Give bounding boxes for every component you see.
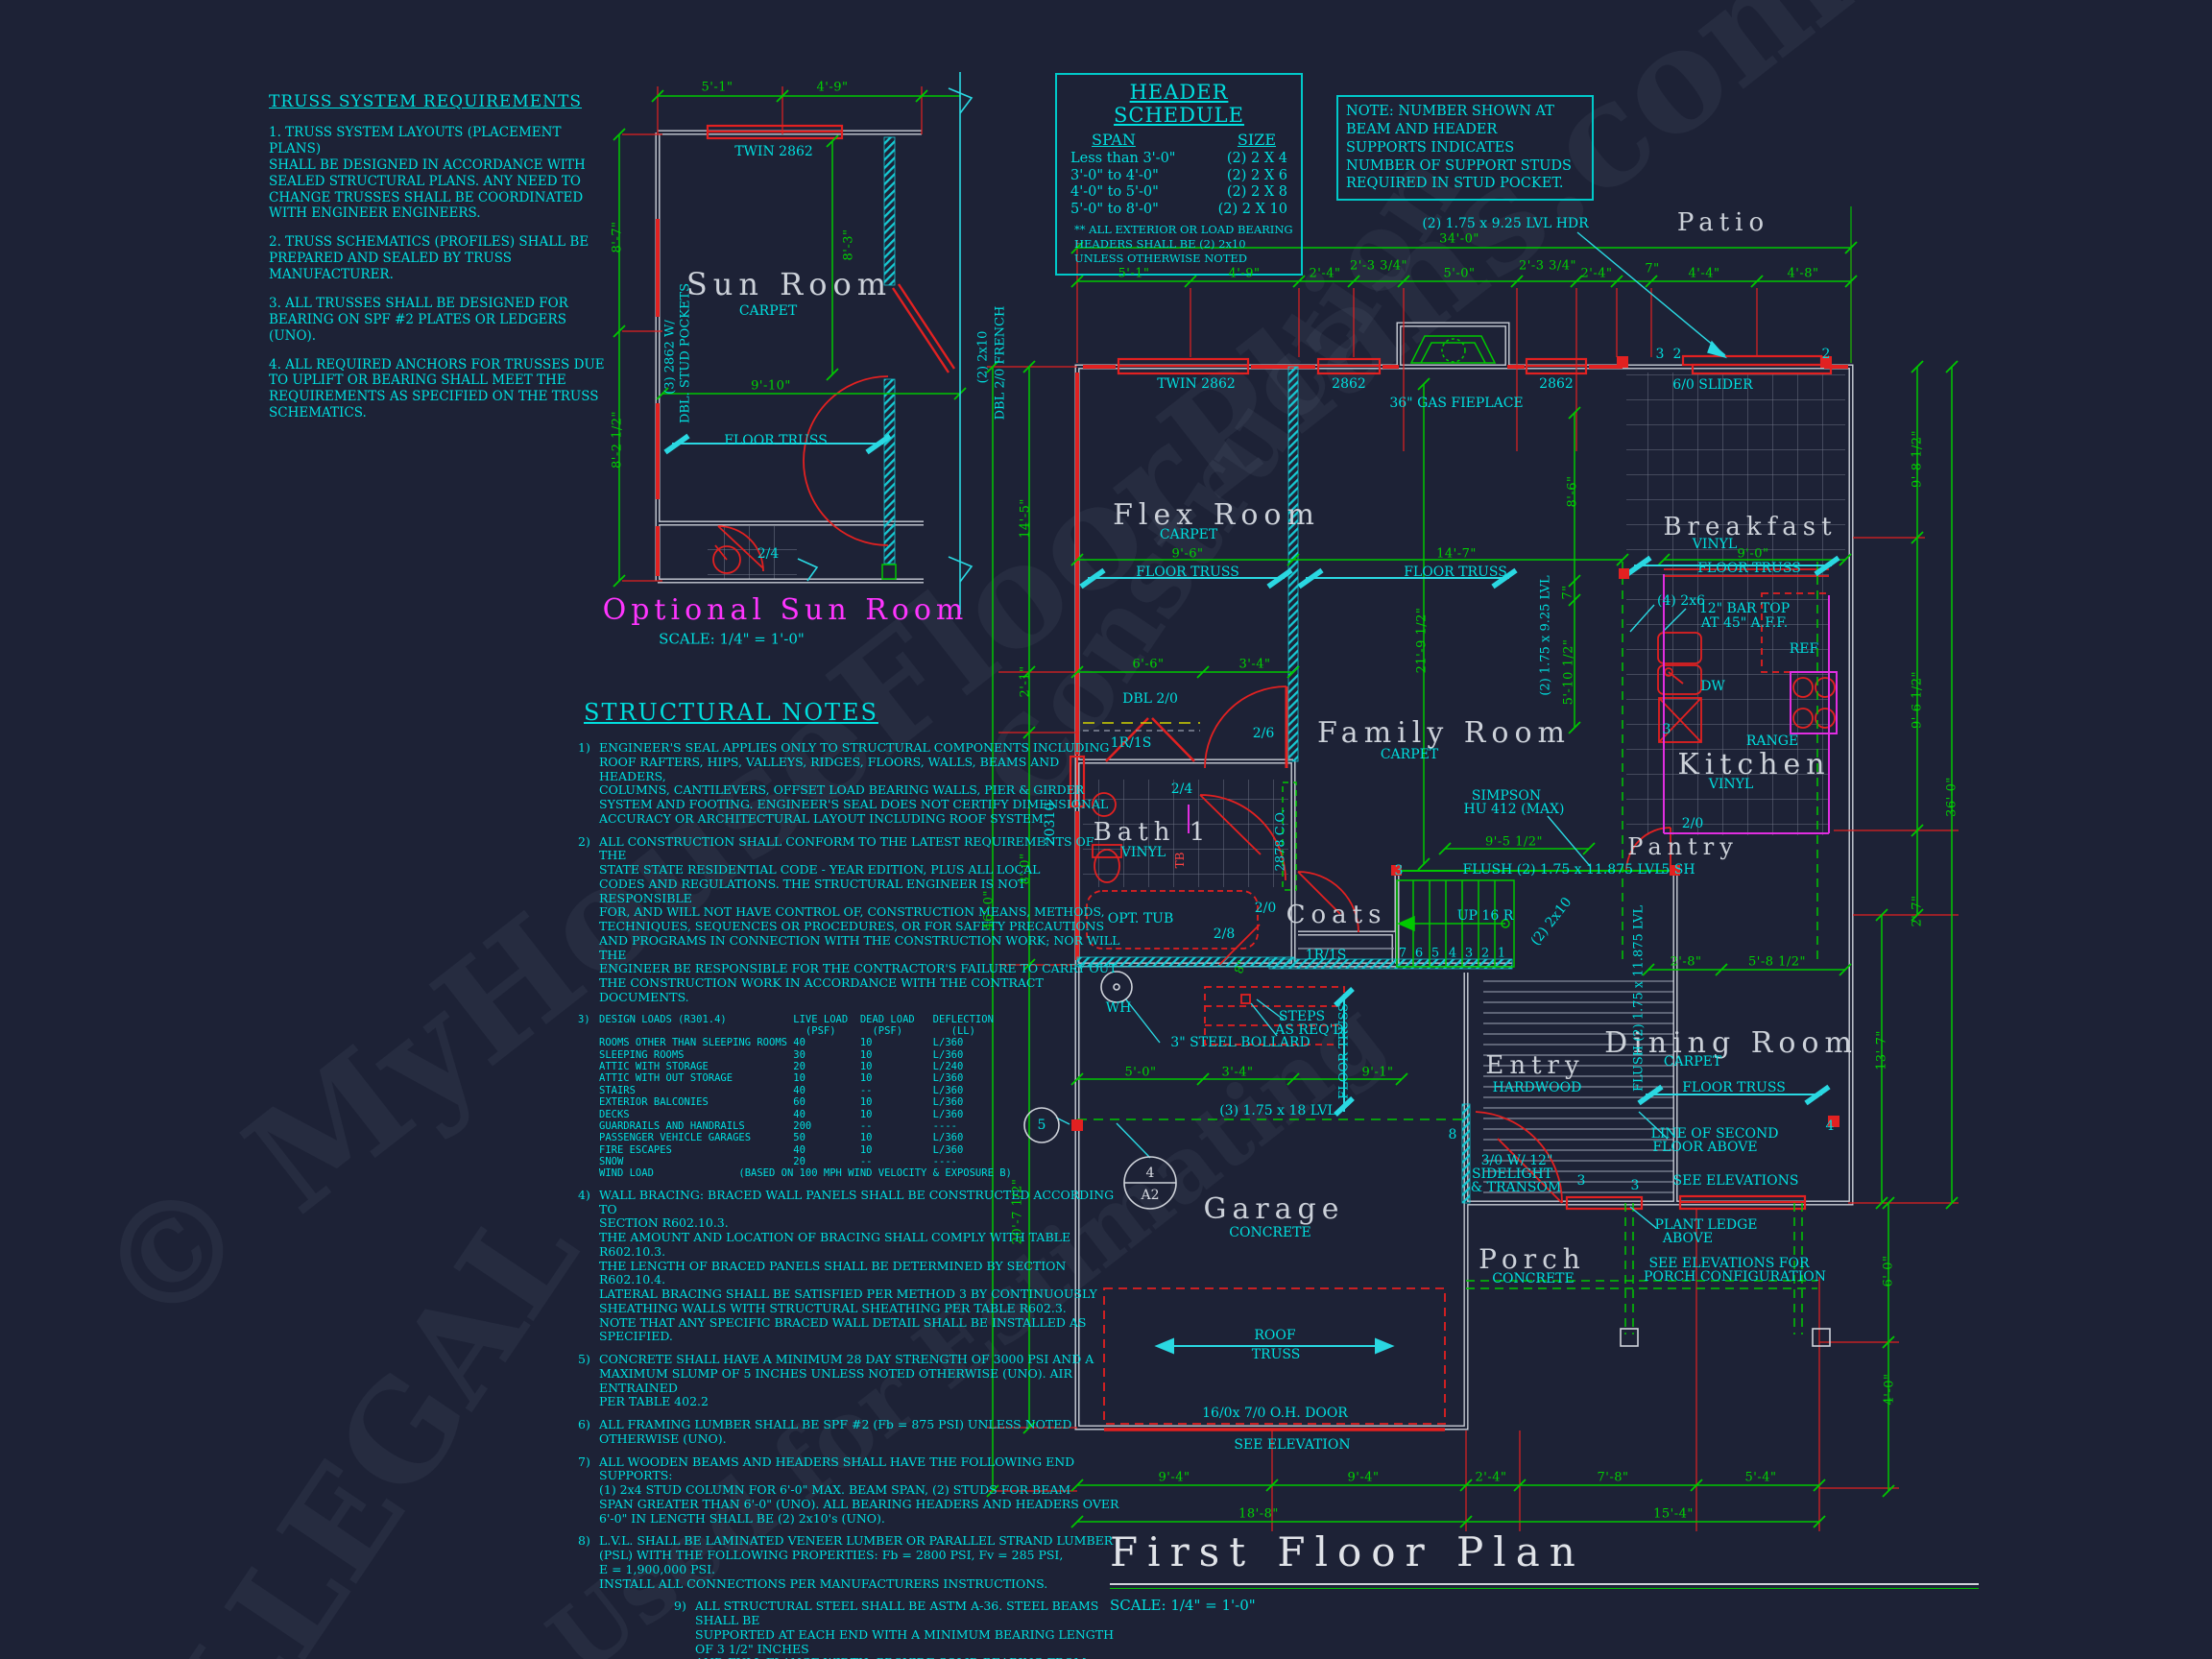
- plan-label: 8'-3": [843, 229, 855, 261]
- plan-label: FLOOR ABOVE: [1652, 1141, 1757, 1154]
- plan-label: DBL 2/0 FRENCH: [995, 306, 1007, 421]
- plan-label: 14'-7": [1436, 548, 1477, 561]
- plan-label: TWIN 2862: [1157, 377, 1236, 391]
- plan-label: (3) 2862 W/: [664, 320, 677, 395]
- plan-label: 2: [1481, 948, 1489, 960]
- plan-label: 16/0x 7/0 O.H. DOOR: [1202, 1407, 1348, 1420]
- structural-note: 7)ALL WOODEN BEAMS AND HEADERS SHALL HAV…: [578, 1455, 1121, 1527]
- plan-label: 7": [1645, 263, 1659, 276]
- sheet-title: First Floor Plan: [1110, 1528, 1984, 1575]
- plan-label: 8'-6": [1567, 476, 1579, 508]
- structural-notes-title: STRUCTURAL NOTES: [584, 699, 1121, 726]
- plan-label: CONCRETE: [1229, 1226, 1310, 1239]
- plan-label: FLOOR TRUSS: [724, 434, 828, 447]
- plan-label: 5'-8 1/2": [1748, 956, 1806, 969]
- plan-label: WH: [1106, 1001, 1132, 1015]
- plan-label: 20310: [1044, 803, 1057, 846]
- plan-label: SIDELIGHT: [1472, 1167, 1552, 1181]
- plan-label: 4: [1826, 1119, 1835, 1133]
- plan-label: Kitchen: [1677, 751, 1830, 780]
- plan-label: DBL. STUD POCKETS: [680, 283, 692, 423]
- plan-label: 18'-8": [1238, 1508, 1279, 1521]
- plan-label: 6: [1415, 948, 1423, 960]
- structural-note: 4)WALL BRACING: BRACED WALL PANELS SHALL…: [578, 1189, 1121, 1344]
- plan-label: LINE OF SECOND: [1651, 1127, 1779, 1141]
- plan-label: (2) 2x10: [977, 331, 990, 384]
- plan-label: TB: [1174, 853, 1186, 869]
- plan-label: 15'-4": [1653, 1508, 1694, 1521]
- blueprint-sheet: © MyHouseFloorPlans.comILLEGALUsed for E…: [0, 0, 2212, 1659]
- structural-note: 9)ALL STRUCTURAL STEEL SHALL BE ASTM A-3…: [674, 1599, 1121, 1659]
- plan-label: 4: [1449, 948, 1456, 960]
- header-schedule-footnote: ** ALL EXTERIOR OR LOAD BEARING HEADERS …: [1065, 223, 1293, 266]
- truss-requirement-item: 3. ALL TRUSSES SHALL BE DESIGNED FOR BEA…: [269, 296, 616, 345]
- plan-label: 2/4: [757, 547, 780, 561]
- plan-label: 9'-4": [1348, 1472, 1380, 1484]
- header-size-value: (2) 2 X 4: [1227, 151, 1287, 168]
- plan-label: 14'-5": [1020, 498, 1032, 539]
- header-span-value: Less than 3'-0": [1070, 151, 1175, 168]
- header-size-value: (2) 2 X 10: [1218, 202, 1287, 219]
- plan-label: 3: [1663, 723, 1671, 736]
- plan-label: 3" STEEL BOLLARD: [1170, 1036, 1310, 1049]
- structural-note: 8)L.V.L. SHALL BE LAMINATED VENEER LUMBE…: [578, 1534, 1121, 1591]
- plan-label: VINYL: [1121, 846, 1166, 859]
- header-schedule: HEADER SCHEDULE SPAN SIZE Less than 3'-0…: [1055, 73, 1303, 276]
- structural-note-number: 8): [578, 1534, 590, 1549]
- plan-label: Pantry: [1627, 835, 1739, 858]
- header-size-value: (2) 2 X 8: [1227, 184, 1287, 202]
- plan-label: HU 412 (MAX): [1464, 803, 1565, 816]
- plan-label: Bath 1: [1094, 820, 1212, 845]
- plan-label: Garage: [1203, 1195, 1344, 1224]
- plan-label: 5'-1": [702, 82, 733, 94]
- plan-label: VINYL: [1709, 778, 1753, 791]
- plan-label: 1R/1S: [1111, 736, 1152, 750]
- structural-note-number: 1): [578, 741, 590, 756]
- header-schedule-columns: SPAN SIZE: [1065, 127, 1293, 151]
- plan-label: 46'-0": [983, 890, 996, 930]
- structural-note-number: 5): [578, 1353, 590, 1367]
- plan-label: CARPET: [1381, 748, 1438, 761]
- plan-label: 4'-8": [1788, 268, 1819, 280]
- plan-label: 6'-0": [1883, 1256, 1895, 1287]
- truss-requirement-item: 1. TRUSS SYSTEM LAYOUTS (PLACEMENT PLANS…: [269, 125, 616, 222]
- plan-label: 2'-8": [1671, 956, 1702, 969]
- plan-label: 6'-6": [1133, 659, 1165, 671]
- plan-label: 3/0 W/ 12": [1481, 1154, 1553, 1167]
- plan-label: 9'-1": [1362, 1067, 1394, 1079]
- plan-label: SEE ELEVATION: [1234, 1438, 1350, 1452]
- plan-label: FLOOR TRUSS: [1136, 565, 1239, 579]
- plan-label: 4: [1146, 1166, 1155, 1180]
- structural-note: 5)CONCRETE SHALL HAVE A MINIMUM 28 DAY S…: [578, 1353, 1121, 1409]
- plan-label: ROOF: [1254, 1329, 1295, 1342]
- plan-label: CARPET: [1160, 528, 1217, 541]
- plan-label: 6/0 SLIDER: [1672, 378, 1752, 392]
- plan-label: Coats: [1286, 902, 1387, 927]
- plan-label: HARDWOOD: [1493, 1081, 1582, 1094]
- plan-label: 12" BAR TOP: [1699, 602, 1790, 615]
- plan-label: 8'-7": [612, 222, 624, 253]
- plan-label: SIMPSON: [1472, 789, 1541, 803]
- plan-label: 2'-4": [1581, 268, 1613, 280]
- structural-note-number: 2): [578, 835, 590, 850]
- structural-note: 6)ALL FRAMING LUMBER SHALL BE SPF #2 (Fb…: [578, 1418, 1121, 1447]
- plan-label: 5 SH: [1661, 863, 1695, 877]
- plan-label: (4) 2x6: [1657, 594, 1705, 608]
- plan-label: AT 45" A.F.F.: [1701, 616, 1788, 630]
- plan-label: Sun Room: [686, 269, 892, 300]
- plan-label: 36'-0": [1946, 777, 1959, 817]
- plan-label: 5: [1431, 948, 1439, 960]
- plan-label: 2/4: [1171, 782, 1193, 796]
- plan-label: 2: [1673, 348, 1682, 361]
- structural-note: 1)ENGINEER'S SEAL APPLIES ONLY TO STRUCT…: [578, 741, 1121, 827]
- plan-label: 1: [1498, 948, 1505, 960]
- header-schedule-title: HEADER SCHEDULE: [1065, 81, 1293, 127]
- structural-note-number: 4): [578, 1189, 590, 1203]
- plan-label: 13'-7": [1876, 1030, 1888, 1070]
- truss-requirement-item: 4. ALL REQUIRED ANCHORS FOR TRUSSES DUE …: [269, 357, 616, 422]
- plan-label: 4'-0": [1884, 1374, 1896, 1406]
- plan-label: 20'-7 1/2": [1012, 1179, 1024, 1245]
- plan-label: CONCRETE: [1492, 1272, 1574, 1286]
- header-schedule-col-size: SIZE: [1238, 131, 1276, 149]
- plan-label: 3: [1656, 348, 1665, 361]
- plan-label: 5'-1": [1118, 268, 1150, 280]
- structural-note-number: 3): [578, 1014, 590, 1025]
- plan-label: (2) 1.75 x 9.25 LVL HDR: [1422, 217, 1588, 230]
- plan-label: FLUSH (2) 1.75 x 11.875 LVL: [1462, 863, 1663, 877]
- plan-label: 2'-7": [1911, 896, 1924, 927]
- structural-note-number: 6): [578, 1418, 590, 1432]
- plan-label: 8'-2 1/2": [612, 411, 624, 469]
- plan-label: 3: [1631, 1179, 1640, 1192]
- plan-label: 2'-3 3/4": [1519, 260, 1576, 273]
- plan-label: 9'-5 1/2": [1485, 836, 1543, 849]
- plan-label: 3'-4": [1222, 1067, 1254, 1079]
- plan-label: CARPET: [1664, 1055, 1721, 1069]
- plan-label: 7": [1562, 585, 1575, 599]
- plan-label: VINYL: [1693, 538, 1737, 551]
- header-size-value: (2) 2 X 6: [1227, 168, 1287, 185]
- structural-notes-block: STRUCTURAL NOTES 1)ENGINEER'S SEAL APPLI…: [578, 699, 1121, 1659]
- plan-label: 2/0: [1682, 817, 1704, 830]
- plan-label: 4'-9": [817, 82, 849, 94]
- plan-label: 2862: [1332, 377, 1366, 391]
- title-underline: [1110, 1583, 1979, 1589]
- plan-label: 9'-10": [751, 380, 791, 393]
- plan-label: FLOOR TRUSS: [1338, 1003, 1351, 1099]
- header-schedule-row: Less than 3'-0"(2) 2 X 4: [1065, 151, 1293, 168]
- plan-label: 9'-6 1/2": [1911, 671, 1924, 729]
- plan-label: UP 16 R: [1457, 909, 1513, 923]
- plan-label: DW: [1700, 680, 1725, 693]
- header-span-value: 3'-0" to 4'-0": [1070, 168, 1159, 185]
- structural-note: 3)DESIGN LOADS (R301.4) LIVE LOAD DEAD L…: [578, 1014, 1121, 1180]
- header-schedule-row: 5'-0" to 8'-0"(2) 2 X 10: [1065, 202, 1293, 219]
- plan-label: AS REQ'D: [1275, 1023, 1343, 1037]
- plan-label: Optional Sun Room: [603, 596, 969, 625]
- plan-label: 5: [1038, 1118, 1046, 1132]
- plan-label: Family Room: [1317, 719, 1571, 748]
- plan-label: DBL 2/0: [1122, 692, 1178, 706]
- plan-label: FLOOR TRUSS: [1682, 1081, 1786, 1094]
- sheet-scale: SCALE: 1/4" = 1'-0": [1110, 1597, 1984, 1614]
- plan-label: 9'-0": [1738, 548, 1769, 561]
- plan-label: 5'-10 1/2": [1563, 639, 1575, 706]
- plan-label: TWIN 2862: [734, 145, 813, 158]
- plan-label: 7'-8": [1598, 1472, 1629, 1484]
- structural-notes-items: 1)ENGINEER'S SEAL APPLIES ONLY TO STRUCT…: [578, 741, 1121, 1659]
- plan-label: 9'-6": [1172, 548, 1204, 561]
- plan-label: SCALE: 1/4" = 1'-0": [659, 633, 805, 647]
- plan-label: Entry: [1485, 1053, 1584, 1078]
- plan-label: 5'-0": [1125, 1067, 1157, 1079]
- plan-label: 2/8: [1214, 927, 1236, 941]
- plan-label: 4'-4": [1689, 268, 1720, 280]
- structural-note-number: 9): [674, 1599, 686, 1614]
- plan-label: FLUSH (2) 1.75 x 11.875 LVL: [1633, 905, 1646, 1092]
- structural-note: 2)ALL CONSTRUCTION SHALL CONFORM TO THE …: [578, 835, 1121, 1005]
- plan-label: 36" GAS FIEPLACE: [1389, 397, 1523, 410]
- header-schedule-rows: Less than 3'-0"(2) 2 X 43'-0" to 4'-0"(2…: [1065, 151, 1293, 219]
- header-span-value: 5'-0" to 8'-0": [1070, 202, 1159, 219]
- plan-label: REF: [1790, 642, 1818, 656]
- plan-label: 3: [1465, 948, 1473, 960]
- plan-label: 2'-3 3/4": [1350, 260, 1407, 273]
- plan-label: 34'-0": [1439, 233, 1479, 246]
- header-schedule-col-span: SPAN: [1092, 131, 1136, 149]
- plan-label: A2: [1141, 1189, 1159, 1202]
- plan-label: 2'-1": [1020, 666, 1032, 698]
- plan-label: 7: [1399, 948, 1407, 960]
- plan-label: Breakfast: [1663, 515, 1837, 540]
- plan-label: 9'-8 1/2": [1911, 430, 1924, 488]
- plan-label: 2878 C.O.: [1275, 809, 1287, 872]
- plan-label: 2/0: [1255, 902, 1277, 915]
- plan-label: 21'-9 1/2": [1416, 608, 1429, 674]
- plan-label: FLOOR TRUSS: [1404, 565, 1507, 579]
- truss-requirements-title: TRUSS SYSTEM REQUIREMENTS: [269, 92, 616, 111]
- truss-requirements-items: 1. TRUSS SYSTEM LAYOUTS (PLACEMENT PLANS…: [269, 125, 616, 421]
- plan-label: 3'-4": [1239, 659, 1271, 671]
- plan-label: (2) 1.75 x 9.25 LVL: [1540, 575, 1552, 695]
- plan-label: 2862: [1539, 377, 1574, 391]
- header-schedule-row: 4'-0" to 5'-0"(2) 2 X 8: [1065, 184, 1293, 202]
- plan-label: CARPET: [739, 304, 797, 318]
- plan-label: STEPS: [1279, 1010, 1325, 1023]
- plan-label: 3: [1577, 1174, 1586, 1188]
- plan-label: Patio: [1677, 210, 1769, 235]
- plan-label: 2'-4": [1310, 268, 1341, 280]
- plan-label: TRUSS: [1252, 1348, 1301, 1361]
- plan-label: FLOOR TRUSS: [1697, 562, 1801, 575]
- truss-requirements-block: TRUSS SYSTEM REQUIREMENTS 1. TRUSS SYSTE…: [269, 92, 616, 434]
- plan-label: 3: [1395, 864, 1404, 878]
- header-span-value: 4'-0" to 5'-0": [1070, 184, 1159, 202]
- plan-label: PORCH CONFIGURATION: [1644, 1270, 1826, 1284]
- plan-label: & TRANSOM: [1471, 1181, 1562, 1194]
- header-schedule-row: 3'-0" to 4'-0"(2) 2 X 6: [1065, 168, 1293, 185]
- plan-label: 2/6: [1253, 727, 1275, 740]
- truss-requirement-item: 2. TRUSS SCHEMATICS (PROFILES) SHALL BE …: [269, 234, 616, 283]
- plan-label: 5'-0": [1444, 268, 1476, 280]
- plan-label: Flex Room: [1113, 501, 1320, 530]
- plan-label: 8: [1449, 1128, 1457, 1142]
- plan-label: 5'-4": [1745, 1472, 1777, 1484]
- plan-label: OPT. TUB: [1108, 912, 1174, 926]
- structural-note-number: 7): [578, 1455, 590, 1470]
- plan-label: RANGE: [1746, 734, 1798, 748]
- plan-label: SEE ELEVATIONS FOR: [1648, 1257, 1809, 1270]
- plan-label: (3) 1.75 x 18 LVL: [1219, 1104, 1336, 1118]
- plan-label: 1R/1S: [1306, 949, 1347, 962]
- plan-label: 2: [1822, 348, 1831, 361]
- plan-label: 4'-9": [1229, 268, 1261, 280]
- stud-pocket-note: NOTE: NUMBER SHOWN AT BEAM AND HEADER SU…: [1336, 95, 1594, 201]
- plan-label: 2'-4": [1476, 1472, 1507, 1484]
- plan-label: SEE ELEVATIONS: [1673, 1174, 1799, 1188]
- sheet-title-block: First Floor Plan SCALE: 1/4" = 1'-0": [1110, 1528, 1984, 1614]
- plan-label: 8'-0": [1020, 854, 1032, 885]
- plan-label: ABOVE: [1663, 1232, 1713, 1245]
- plan-label: Porch: [1479, 1246, 1586, 1273]
- plan-label: 9'-4": [1159, 1472, 1190, 1484]
- plan-label: PLANT LEDGE: [1654, 1218, 1757, 1232]
